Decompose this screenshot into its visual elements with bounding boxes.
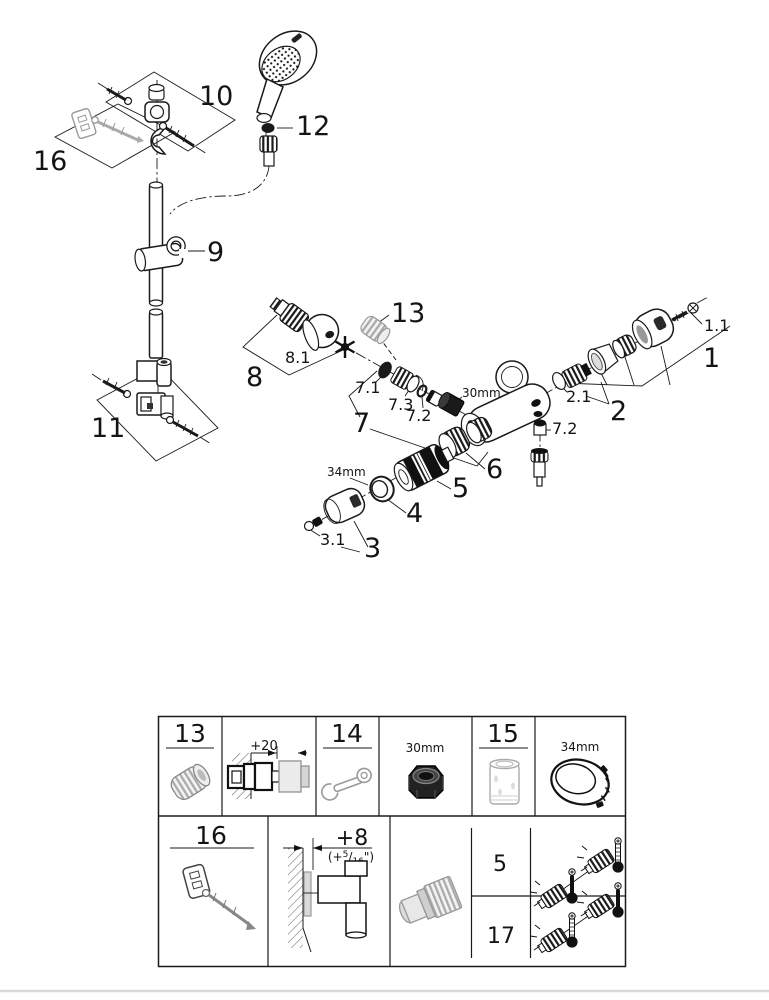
callout-3: 3 [364, 533, 381, 564]
wall-offset-diagram: +8 (+5/16") [283, 826, 374, 952]
screw-group-7-2 [531, 420, 548, 487]
grease-star-icon [336, 336, 355, 358]
wall-anchor-group [71, 108, 144, 143]
cell-15: 15 [479, 719, 528, 804]
callout-1: 1 [703, 343, 720, 374]
screw [672, 303, 698, 321]
nut-30mm-icon [409, 766, 443, 798]
wall-plug-icon [71, 108, 96, 139]
callout-3-1: 3.1 [320, 530, 345, 549]
screw [92, 117, 144, 143]
cell-14-number: 14 [331, 719, 363, 748]
callout-7-2b: 7.2 [552, 419, 577, 438]
ring-34mm-icon [547, 753, 616, 811]
callout-8: 8 [246, 362, 263, 393]
table-border [159, 717, 626, 967]
hand-shower [249, 20, 327, 118]
cartridge-sleeve-icon [490, 760, 519, 805]
o-ring [262, 123, 275, 133]
callout-13: 13 [391, 298, 425, 329]
escutcheon-group [585, 303, 698, 377]
check-valve-group [267, 294, 343, 353]
screw [160, 123, 195, 147]
dim-34mm: 34mm [327, 465, 366, 479]
cell-30mm: 30mm [406, 741, 445, 798]
dim-plus8: +8 [336, 826, 368, 851]
rail-clamp [151, 128, 165, 154]
row-17-number: 17 [487, 924, 515, 949]
cell-16: 16 [170, 821, 256, 930]
stop-ring-icon [168, 761, 213, 802]
callout-7: 7 [353, 408, 370, 439]
callout-6: 6 [486, 454, 503, 485]
shower-hose-line [170, 166, 269, 214]
spare-parts-table: 13 +20 14 [159, 717, 626, 967]
trim-ring [366, 473, 398, 506]
callout-12: 12 [296, 111, 330, 142]
callout-7-1: 7.1 [355, 378, 380, 397]
dim-30mm-table: 30mm [406, 741, 445, 755]
hose-nut [260, 136, 277, 152]
bracket-top-group [107, 85, 194, 155]
cap-group [305, 485, 368, 530]
dim-30mm: 30mm [462, 386, 501, 400]
cell-13: 13 [166, 719, 214, 803]
row-5-number: 5 [493, 852, 507, 877]
wrench-icon [319, 767, 375, 801]
callout-9: 9 [207, 237, 224, 268]
parts-diagram: 10 12 16 9 11 8 8.1 13 7.1 7.3 7.2 7 30m… [0, 0, 769, 1000]
callout-8-1: 8.1 [285, 348, 310, 367]
dim-34mm-table: 34mm [561, 740, 600, 754]
callout-2-1: 2.1 [566, 387, 591, 406]
stop-ring-part [359, 314, 393, 346]
screw [107, 87, 132, 105]
callout-11: 11 [91, 413, 125, 444]
callout-16: 16 [33, 146, 67, 177]
callout-4: 4 [406, 498, 423, 529]
cell-13-number: 13 [174, 719, 206, 748]
cell-16-number: 16 [195, 821, 227, 850]
callout-1-1: 1.1 [704, 316, 729, 335]
union-adapter-icon [395, 876, 462, 930]
screw [167, 417, 199, 437]
hose-union-group [257, 114, 277, 167]
callout-2: 2 [610, 396, 627, 427]
callout-7-2: 7.2 [406, 406, 431, 425]
cell-15-number: 15 [487, 719, 519, 748]
cell-34mm: 34mm [547, 740, 616, 811]
wall-depth-diagram: +20 [228, 739, 309, 799]
temperature-stop [531, 448, 548, 486]
wall-plug-screw-icon [182, 864, 256, 930]
dim-plus20: +20 [250, 739, 277, 754]
parts-diagram-page: 10 12 16 9 11 8 8.1 13 7.1 7.3 7.2 7 30m… [0, 0, 769, 1000]
cell-14: 14 [319, 719, 375, 801]
callout-5: 5 [452, 473, 469, 504]
callout-10: 10 [199, 81, 233, 112]
screw [305, 516, 324, 530]
